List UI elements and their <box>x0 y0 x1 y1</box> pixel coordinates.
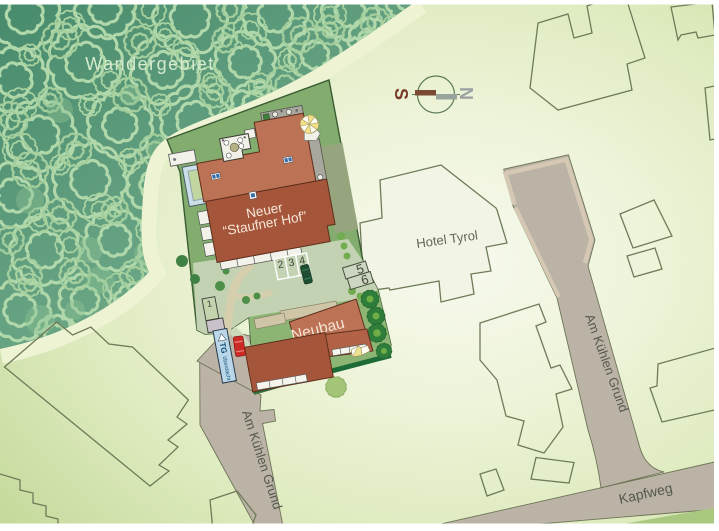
svg-text:S: S <box>391 88 411 100</box>
svg-text:Wandergebiet: Wandergebiet <box>85 54 214 74</box>
svg-text:N: N <box>456 87 476 100</box>
